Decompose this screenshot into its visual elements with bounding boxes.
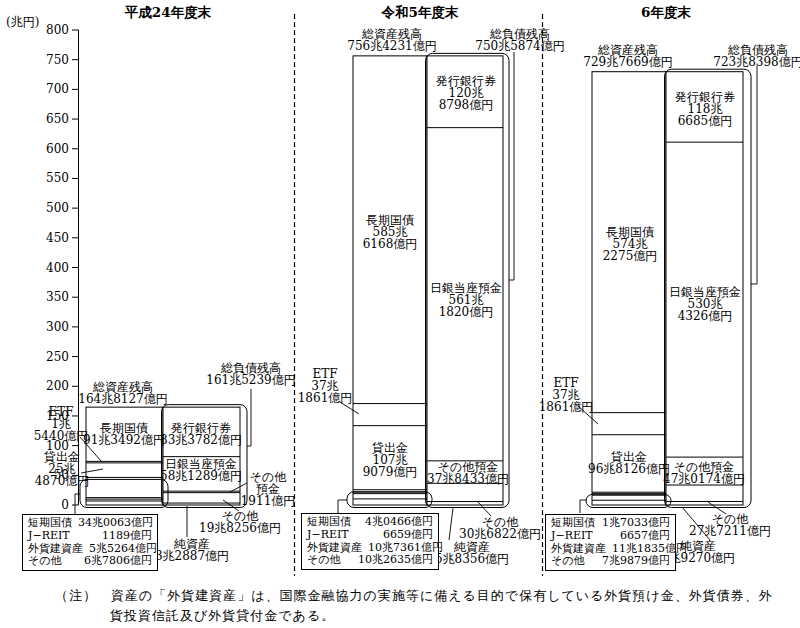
- segment-label-other-deposits: その他預金 37兆8433億円: [427, 461, 509, 485]
- footnote-line-2: 貨投資信託及び外貨貸付金である。: [110, 607, 335, 625]
- row-name: 短期国債: [307, 516, 351, 529]
- y-tick-label: 150: [46, 410, 69, 422]
- segment-label-jgb: 長期国債 91兆3492億円: [83, 422, 165, 446]
- table-row: 短期国債4兆0466億円: [307, 516, 433, 529]
- segment-label-banknotes: 発行銀行券 118兆 6685億円: [675, 91, 735, 127]
- label-line: 164兆8127億円: [78, 393, 167, 405]
- segment-label-loans: 貸出金 96兆8126億円: [588, 451, 670, 475]
- total-assets-label: 総資産残高 164兆8127億円: [78, 381, 167, 405]
- row-value: 1兆7033億円: [602, 517, 670, 530]
- y-tick-label: 550: [46, 172, 69, 184]
- label-line: 4326億円: [669, 310, 741, 322]
- label-line: 5兆8356億円: [435, 553, 509, 565]
- chart-canvas: (兆円) 平成24年度末 令和5年度末 6年度末 総資産残高 164兆8127億…: [0, 0, 800, 628]
- y-tick-label: 500: [46, 202, 69, 214]
- label-line: 30兆6822億円: [459, 528, 541, 540]
- table-row: J−REIT6659億円: [307, 529, 433, 542]
- segment-label-other-liabilities: その他 27兆7211億円: [689, 513, 771, 537]
- y-tick-label: 100: [46, 440, 69, 452]
- segment-label-banknotes: 発行銀行券 83兆3782億円: [160, 422, 242, 446]
- row-value: 1189億円: [102, 530, 152, 543]
- label-line: 2275億円: [603, 250, 658, 262]
- row-value: 6657億円: [620, 530, 670, 543]
- label-line: 1820億円: [430, 306, 502, 318]
- row-name: J−REIT: [28, 530, 70, 543]
- y-tick-label: 350: [46, 291, 69, 303]
- net-assets-label: 純資産 5兆8356億円: [435, 541, 509, 565]
- label-line: 1911億円: [241, 495, 296, 507]
- segment-label-jgb: 長期国債 574兆 2275億円: [603, 226, 658, 262]
- y-tick-label: 700: [46, 83, 69, 95]
- y-tick-label: 50: [54, 469, 69, 481]
- chart-title-reiwa6: 6年度末: [641, 4, 691, 22]
- y-tick-label: 250: [46, 351, 69, 363]
- label-line: 47兆0174億円: [663, 473, 745, 485]
- label-line: 723兆8398億円: [713, 56, 800, 68]
- row-name: 短期国債: [551, 517, 595, 530]
- row-value: 6兆7806億円: [84, 555, 152, 568]
- asset-detail-table: 短期国債34兆0063億円 J−REIT1189億円 外貨建資産5兆5264億円…: [22, 514, 158, 571]
- total-assets-label: 総資産残高 756兆4231億円: [347, 28, 436, 52]
- row-value: 34兆0063億円: [78, 517, 153, 530]
- label-line: 96兆8126億円: [588, 463, 670, 475]
- total-assets-label: 総資産残高 729兆7669億円: [583, 44, 672, 68]
- y-tick-label: 0: [61, 499, 69, 511]
- segment-label-other-liabilities: その他 30兆6822億円: [459, 516, 541, 540]
- y-tick-label: 450: [46, 232, 69, 244]
- label-line: 161兆5239億円: [206, 374, 295, 386]
- label-line: 58兆1289億円: [160, 470, 242, 482]
- segment-label-etf: ETF 37兆 1861億円: [298, 368, 353, 404]
- y-tick-label: 650: [46, 113, 69, 125]
- label-line: 91兆3492億円: [83, 434, 165, 446]
- label-line: 6168億円: [363, 238, 418, 250]
- label-line: 729兆7669億円: [583, 56, 672, 68]
- table-row: 短期国債1兆7033億円: [551, 517, 670, 530]
- label-line: 9079億円: [363, 466, 418, 478]
- y-tick-label: 300: [46, 321, 69, 333]
- label-line: 3兆2887億円: [155, 550, 229, 562]
- table-row: その他6兆7806億円: [28, 555, 152, 568]
- label-line: 83兆3782億円: [160, 434, 242, 446]
- label-line: 756兆4231億円: [347, 40, 436, 52]
- segment-label-jgb: 長期国債 585兆 6168億円: [363, 214, 418, 250]
- label-line: 8798億円: [436, 99, 496, 111]
- footnote-line-1: （注） 資産の「外貨建資産」は、国際金融協力の実施等に備える目的で保有している外…: [55, 587, 773, 605]
- table-row: J−REIT6657億円: [551, 530, 670, 543]
- row-name: その他: [551, 555, 585, 568]
- label-line: 750兆5874億円: [475, 40, 564, 52]
- y-tick-label: 400: [46, 262, 69, 274]
- asset-detail-table: 短期国債4兆0466億円 J−REIT6659億円 外貨建資産10兆7361億円…: [301, 513, 439, 570]
- label-line: 6685億円: [675, 115, 735, 127]
- segment-label-loans: 貸出金 107兆 9079億円: [363, 442, 418, 478]
- row-name: J−REIT: [307, 529, 349, 542]
- label-line: 1861億円: [539, 401, 594, 413]
- table-row: 短期国債34兆0063億円: [28, 517, 152, 530]
- row-name: その他: [307, 554, 341, 567]
- segment-label-other-liabilities: その他 19兆8256億円: [199, 510, 281, 534]
- row-name: その他: [28, 555, 62, 568]
- row-name: J−REIT: [551, 530, 593, 543]
- chart-title-heisei24: 平成24年度末: [125, 4, 211, 22]
- y-tick-label: 750: [46, 54, 69, 66]
- segment-label-current-deposits: 日銀当座預金 530兆 4326億円: [669, 286, 741, 322]
- label-line: 1861億円: [298, 392, 353, 404]
- total-liabilities-label: 総負債残高 161兆5239億円: [206, 362, 295, 386]
- row-value: 6659億円: [383, 529, 433, 542]
- net-assets-label: 純資産 3兆2887億円: [155, 538, 229, 562]
- total-liabilities-label: 総負債残高 723兆8398億円: [713, 44, 800, 68]
- row-value: 7兆9879億円: [602, 555, 670, 568]
- row-name: 短期国債: [28, 517, 72, 530]
- table-row: その他10兆2635億円: [307, 554, 433, 567]
- segment-label-current-deposits: 日銀当座預金 561兆 1820億円: [430, 282, 502, 318]
- segment-label-banknotes: 発行銀行券 120兆 8798億円: [436, 75, 496, 111]
- asset-detail-table: 短期国債1兆7033億円 J−REIT6657億円 外貨建資産11兆1835億円…: [545, 514, 676, 571]
- row-value: 10兆2635億円: [358, 554, 433, 567]
- total-liabilities-label: 総負債残高 750兆5874億円: [475, 28, 564, 52]
- segment-label-other-deposits: その他 預金 1911億円: [241, 471, 296, 507]
- y-tick-label: 800: [46, 24, 69, 36]
- label-line: 27兆7211億円: [689, 525, 771, 537]
- chart-title-reiwa5: 令和5年度末: [382, 4, 459, 22]
- y-tick-label: 200: [46, 380, 69, 392]
- label-line: 37兆8433億円: [427, 473, 509, 485]
- segment-label-other-deposits: その他預金 47兆0174億円: [663, 461, 745, 485]
- y-axis-unit-label: (兆円): [6, 14, 39, 31]
- segment-label-current-deposits: 日銀当座預金 58兆1289億円: [160, 458, 242, 482]
- row-value: 4兆0466億円: [365, 516, 433, 529]
- y-tick-label: 600: [46, 143, 69, 155]
- table-row: J−REIT1189億円: [28, 530, 152, 543]
- segment-label-etf: ETF 37兆 1861億円: [539, 377, 594, 413]
- table-row: その他7兆9879億円: [551, 555, 670, 568]
- label-line: 19兆8256億円: [199, 522, 281, 534]
